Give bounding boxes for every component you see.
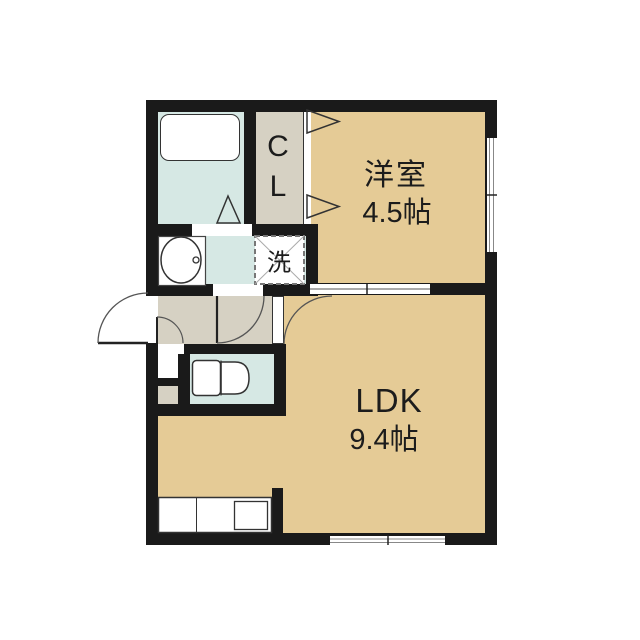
kitchen-sink-icon [235, 502, 268, 530]
closet-label-line2: L [267, 167, 289, 207]
toilet-door-icon [157, 317, 183, 343]
ldk-area: 9.4帖 [349, 416, 418, 458]
western-room-area: 4.5帖 [362, 189, 431, 231]
closet-folding-door-icon [307, 110, 339, 218]
toilet-icon [193, 361, 250, 396]
ldk-door-icon [273, 296, 333, 344]
washbasin-icon [159, 237, 206, 286]
bathroom-door-triangle-icon [217, 196, 240, 223]
laundry-label: 洗 [267, 243, 291, 278]
powder-door-icon [217, 296, 264, 343]
entrance-door-icon [98, 293, 148, 343]
kitchen-counter [159, 498, 272, 533]
closet-label: C L [267, 127, 289, 207]
western-room-label: 洋室 [364, 150, 428, 194]
ldk-label: LDK [355, 382, 422, 420]
floor-plan: C L 洋室 4.5帖 LDK 9.4帖 洗 [0, 0, 640, 640]
symbol-overlay [0, 0, 640, 640]
closet-label-line1: C [267, 127, 289, 167]
sliding-door-lines [310, 284, 430, 294]
